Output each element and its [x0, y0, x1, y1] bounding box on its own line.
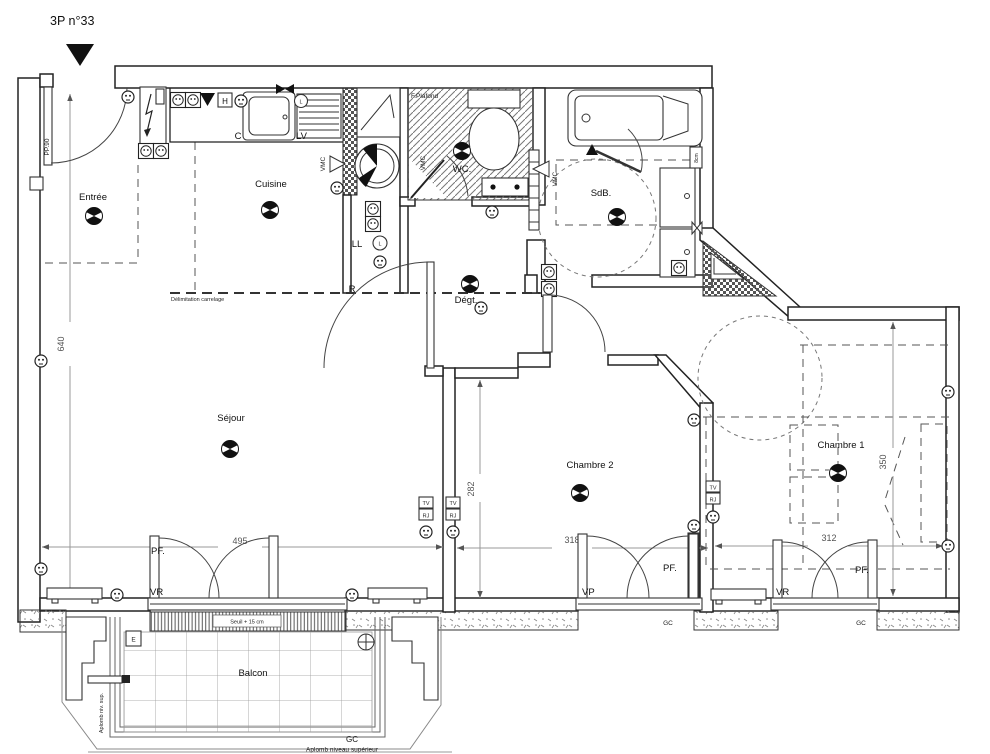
socket-icon [122, 91, 134, 103]
kitchen-room-label: Cuisine [255, 179, 287, 219]
floor-plan-drawing: 3P n°33 [0, 0, 990, 754]
tv-label: TV [709, 486, 716, 492]
socket-icon [366, 202, 381, 217]
vanity-units [660, 168, 702, 277]
drain-icon [358, 634, 374, 650]
socket-icon [942, 540, 954, 552]
toilet-tank [468, 90, 520, 108]
socket-icon [139, 144, 154, 159]
window-leaf [269, 536, 278, 598]
threshold: Seuil + 15 cm [150, 612, 346, 631]
socket-icon [331, 182, 343, 194]
dishwasher-label: LV [296, 131, 308, 142]
sejour-door-leaf [427, 262, 434, 368]
bath-screen [596, 151, 641, 172]
gc-label: GC [663, 620, 673, 627]
balcony: Balcon E Aplomb niv. sup. GC Aplomb nive… [62, 617, 452, 754]
socket-icon [171, 93, 186, 108]
room-label-chambre1: Chambre 1 [818, 440, 865, 451]
socket-icon [111, 589, 123, 601]
vr-label: VR [150, 587, 163, 598]
corner-cabinet [357, 88, 400, 137]
socket-icon [35, 563, 47, 575]
switch-icon [30, 177, 43, 190]
seuil-label: Seuil + 15 cm [230, 620, 264, 626]
socket-icon [688, 520, 700, 532]
bedroom2: Chambre 2 [567, 414, 701, 532]
ceiling-light-icon [607, 209, 626, 226]
balcony-pier [66, 617, 106, 700]
vp-label: VP [582, 587, 595, 598]
pf-label: PF. [151, 546, 165, 557]
bedroom1: Chambre 1 TV RJ [688, 386, 954, 604]
towel-radiator [529, 150, 539, 230]
rj-label: RJ [450, 514, 457, 520]
gc-label: GC [856, 620, 866, 627]
dim-chambre2-height: 282 [466, 481, 476, 496]
cooker-label: C [235, 131, 242, 142]
socket-icon [374, 256, 386, 268]
vmc-label: VMC [552, 171, 559, 186]
room-label-balcon: Balcon [238, 668, 267, 679]
ceiling-light-icon [260, 202, 279, 219]
socket-icon [366, 217, 381, 232]
chambre1-french-window: VR PF. GC [771, 540, 879, 627]
unit-title: 3P n°33 [50, 14, 94, 28]
ceiling-light-icon [220, 441, 239, 458]
appliance-nook: LL L R [349, 202, 387, 296]
ceiling-light-icon [84, 208, 103, 225]
rj-label: RJ [423, 514, 430, 520]
ceiling-light-icon [452, 143, 471, 160]
socket-icon [542, 265, 557, 280]
l-point-label: L [299, 100, 302, 106]
balcony-pier [392, 617, 438, 700]
socket-icon [688, 414, 700, 426]
faux-plafond-label: F.Plafond [411, 93, 438, 100]
socket-icon [475, 302, 487, 314]
window-leaf [689, 534, 698, 598]
entry-hall: Entrée [79, 192, 107, 225]
rj-label: RJ [710, 498, 717, 504]
socket-icon [235, 95, 247, 107]
tv-rj-outlet: TV RJ [706, 481, 720, 504]
tv-label: TV [422, 501, 429, 507]
entrance-door: PP.90 [44, 87, 127, 165]
balcony-tiles [124, 632, 372, 732]
ceiling-light-icon [570, 485, 589, 502]
balcony-fitting [88, 676, 122, 683]
room-label-sdb: SdB. [591, 188, 612, 199]
room-label-chambre2: Chambre 2 [567, 460, 614, 471]
dim-sejour-width: 495 [232, 536, 247, 546]
bathroom: VMC SdB. 8cm [529, 90, 702, 297]
washer-label: LL [352, 239, 363, 250]
room-label-entree: Entrée [79, 192, 107, 203]
kitchen-counter: L C LV H [170, 84, 343, 142]
corner-tiled-shelf [703, 241, 776, 296]
pf-label: PF. [855, 565, 869, 576]
elec-label: E [131, 637, 136, 644]
vr-label: VR [776, 587, 789, 598]
socket-icon [486, 206, 498, 218]
kitchen-sink [243, 84, 295, 140]
ceiling-light-icon [460, 276, 479, 293]
wc-cabinet [482, 178, 528, 196]
duct-label: 8cm [694, 153, 700, 162]
dim-chambre2-width: 318 [564, 535, 579, 545]
socket-icon [346, 589, 358, 601]
entrance-arrow-icon [66, 44, 94, 66]
chambre2-door-leaf [543, 295, 552, 352]
hood-label: H [222, 97, 228, 106]
socket-icon [35, 355, 47, 367]
tv-rj-outlet: TV RJ [419, 497, 433, 538]
vmc-label: VMC [320, 156, 327, 171]
water-heater [355, 144, 399, 188]
tv-rj-outlet: TV RJ [446, 497, 460, 538]
socket-icon [154, 144, 169, 159]
l-point-label: L [378, 242, 381, 248]
dim-chambre1-width: 312 [821, 533, 836, 543]
aplomb-left-label: Aplomb niv. sup. [99, 692, 105, 733]
kitchen-vmc: VMC [320, 156, 345, 172]
ceiling-light-icon [828, 465, 847, 482]
socket-icon [186, 93, 201, 108]
door-code-label: PP.90 [44, 138, 51, 155]
vmc-label: VMC [420, 155, 427, 170]
dim-entree-height: 640 [56, 336, 66, 351]
room-label-degt: Dégt. [455, 295, 478, 306]
socket-icon [542, 282, 557, 297]
gc-label: GC [346, 735, 358, 744]
tv-label: TV [449, 501, 456, 507]
floor-plan-page: 3P n°33 [0, 0, 990, 754]
room-label-sejour: Séjour [217, 413, 244, 424]
window-leaf [868, 540, 877, 598]
pf-label: PF. [663, 563, 677, 574]
dim-chambre1-height: 350 [878, 454, 888, 469]
sejour-french-window: PF. VR Seuil + 15 cm [148, 536, 347, 631]
socket-icon [707, 511, 719, 523]
room-label-cuisine: Cuisine [255, 179, 287, 190]
toilet-bowl [469, 108, 519, 170]
electrical-column [140, 87, 166, 144]
socket-icon [942, 386, 954, 398]
delimitation-label: Délimitation carrelage [171, 297, 224, 303]
socket-icon [672, 261, 687, 276]
hallway: Dégt. [324, 262, 605, 368]
vmc-exhaust-icon [200, 93, 215, 106]
